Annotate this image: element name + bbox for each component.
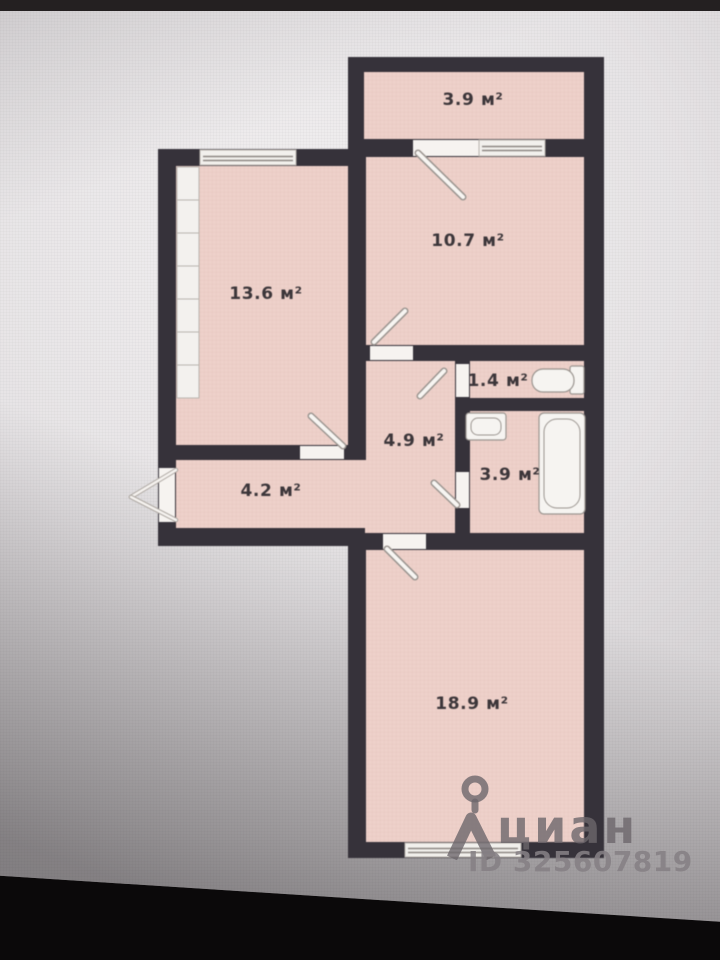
area-label-bathroom: 3.9 м² xyxy=(480,465,541,485)
toilet-icon xyxy=(532,366,584,394)
window-balcony xyxy=(479,140,545,156)
area-label-living: 18.9 м² xyxy=(435,694,508,714)
room-10-7-door-opening xyxy=(370,346,413,360)
area-label-hall: 4.9 м² xyxy=(384,431,445,451)
window-18-9 xyxy=(405,843,521,857)
wardrobe xyxy=(177,167,199,398)
area-label-bedroom: 10.7 м² xyxy=(431,231,504,251)
floor-plan: 3.9 м² 10.7 м² 13.6 м² 1.4 м² 4.9 м² 3.9… xyxy=(0,0,720,960)
room-13-6-door-opening xyxy=(300,446,344,459)
area-label-corridor: 4.2 м² xyxy=(241,481,302,501)
sink-icon xyxy=(466,413,506,440)
floor-plan-drawing xyxy=(0,0,720,960)
window-13-6 xyxy=(200,150,296,165)
room-corridor-junction xyxy=(345,458,367,535)
bathtub-icon xyxy=(539,413,585,514)
area-label-room: 13.6 м² xyxy=(229,284,302,304)
area-label-wc: 1.4 м² xyxy=(468,371,529,391)
photo-of-monitor: 3.9 м² 10.7 м² 13.6 м² 1.4 м² 4.9 м² 3.9… xyxy=(0,0,720,960)
room-13-6 xyxy=(176,166,350,447)
area-label-balcony: 3.9 м² xyxy=(443,90,504,110)
